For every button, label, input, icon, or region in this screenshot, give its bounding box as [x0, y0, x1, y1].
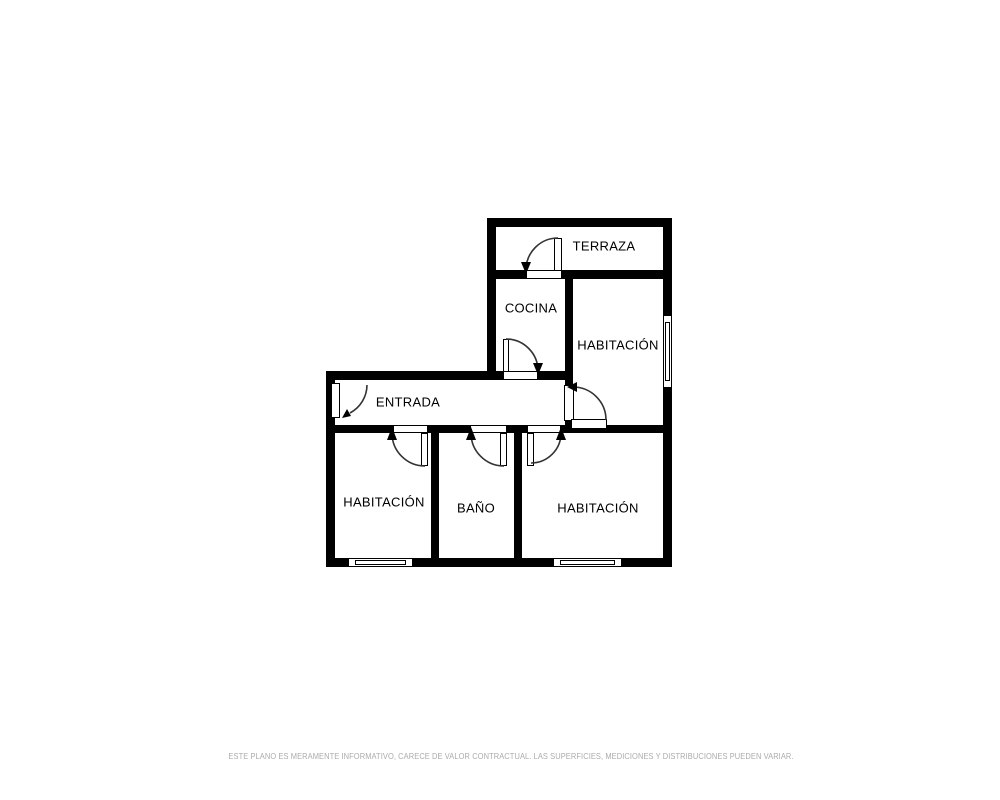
room-label-entrada: ENTRADA [376, 395, 440, 410]
habitacion-top-right-window-glazing [665, 322, 670, 381]
room-label-cocina: COCINA [505, 301, 557, 316]
mid-wall-a [326, 425, 393, 433]
entrance-doorway [331, 383, 340, 418]
disclaimer-text: ESTE PLANO ES MERAMENTE INFORMATIVO, CAR… [228, 751, 793, 761]
cocina-doorway [503, 371, 538, 380]
bano-door-leaf [500, 433, 507, 466]
entrada-top-wall-a [326, 371, 503, 380]
entrance-door-arc [350, 385, 367, 413]
divider-lefthab-bano [431, 425, 439, 558]
terraza-left-wall [487, 218, 496, 380]
habitacion-bottom-right-doorway [527, 425, 561, 433]
habitacion-bottom-left-door-leaf [421, 433, 428, 466]
terraza-divider-b [562, 270, 672, 279]
room-label-terraza: TERRAZA [573, 239, 636, 254]
room-label-habitacion-bottom-left: HABITACIÓN [343, 495, 425, 510]
habitacion-top-right-doorway [564, 385, 574, 421]
cocina-door-arc [506, 339, 538, 371]
cocina-hab-divider [565, 270, 573, 385]
room-label-bano: BAÑO [457, 501, 495, 516]
bano-doorway [470, 425, 507, 433]
divider-bano-righthab [514, 425, 522, 558]
habitacion-top-right-door-arc [573, 387, 606, 420]
habitacion-bottom-left-window-glazing [355, 560, 406, 565]
habitacion-bottom-right-window-glazing [560, 560, 615, 565]
habitacion-top-right-door-leaf [571, 419, 607, 429]
cocina-door-leaf [503, 339, 509, 372]
door-swing-overlay [0, 0, 1000, 800]
terraza-divider-a [487, 270, 526, 279]
top-wall [487, 218, 672, 227]
habitacion-bottom-right-door-leaf [527, 433, 534, 466]
entrance-door-arrow [342, 409, 351, 418]
terraza-doorway [526, 270, 562, 279]
floor-plan-canvas: TERRAZA COCINA HABITACIÓN ENTRADA HABITA… [0, 0, 1000, 800]
room-label-habitacion-bottom-right: HABITACIÓN [557, 501, 639, 516]
habitacion-bottom-right-door-arc [531, 433, 561, 463]
habitacion-bottom-left-doorway [393, 425, 428, 433]
room-label-habitacion-top-right: HABITACIÓN [577, 338, 659, 353]
terraza-door-leaf [554, 238, 562, 271]
